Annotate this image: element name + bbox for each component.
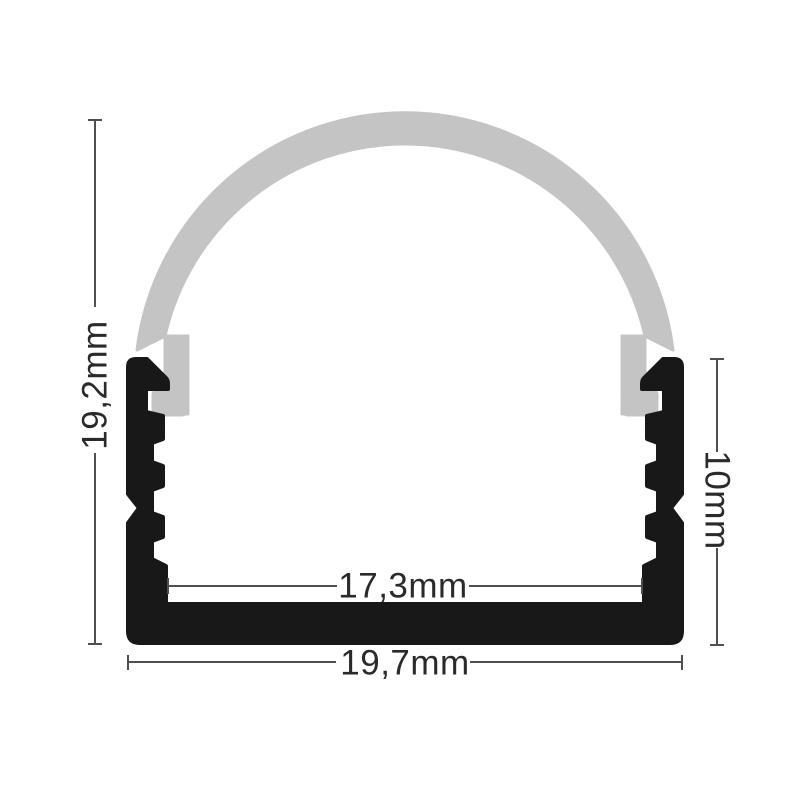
led-profile-cross-section-diagram: 19,2mm 10mm 17,3mm 19,7mm <box>0 0 800 800</box>
diffuser-left-foot <box>153 389 188 415</box>
total-height-label: 19,2mm <box>76 320 115 449</box>
inner-width-label: 17,3mm <box>338 567 467 606</box>
technical-drawing-canvas: 19,2mm 10mm 17,3mm 19,7mm <box>0 0 800 800</box>
diffuser-right-foot <box>622 389 657 415</box>
body-height-label: 10mm <box>698 450 737 549</box>
total-width-label: 19,7mm <box>340 644 469 683</box>
